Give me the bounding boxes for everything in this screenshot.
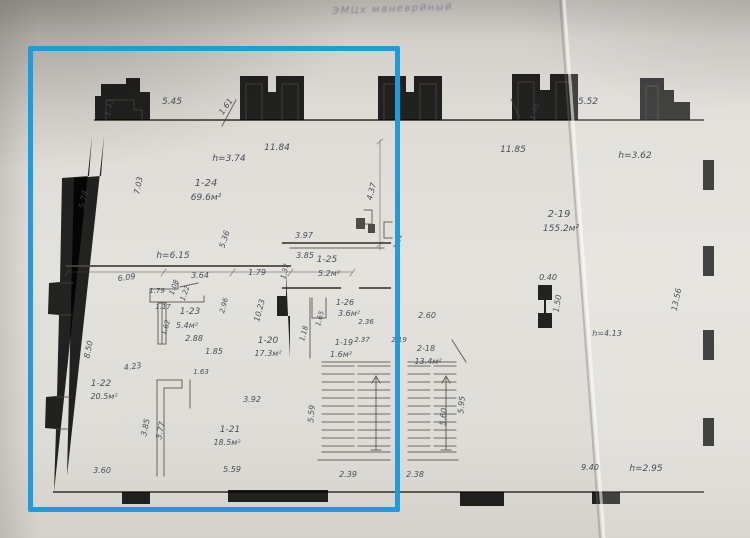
room-label: 2-19: [548, 209, 571, 220]
dim-label: 2.38: [406, 470, 424, 479]
dim-label: 2.60: [418, 311, 436, 320]
paper-crease: [560, 0, 750, 538]
floor-plan-photo: 5.451.431.6111.84h=3.741-2469.6м²7.035.7…: [0, 0, 750, 538]
dim-label: 9.40: [581, 463, 599, 472]
dim-label: 1.50: [552, 294, 564, 313]
staircase-right: [404, 358, 468, 476]
note-label: h=2.95: [629, 464, 663, 474]
column: [538, 285, 552, 328]
area-label: 13.4м²: [414, 357, 442, 366]
dim-label: 5.52: [578, 97, 598, 107]
area-label: 155.2м²: [543, 224, 580, 234]
dim-label: 5.95: [456, 396, 467, 415]
room-label: 2-18: [417, 344, 435, 353]
note-label: h=4.13: [592, 329, 622, 338]
room-2-18-top: [404, 331, 452, 340]
dim-label: 0.40: [539, 273, 557, 282]
dim-label: 11.85: [500, 145, 526, 155]
selection-rectangle[interactable]: [28, 46, 400, 512]
door-leaf: [452, 340, 466, 362]
note-label: h=3.62: [618, 151, 652, 161]
dim-label: 5.60: [438, 408, 449, 427]
